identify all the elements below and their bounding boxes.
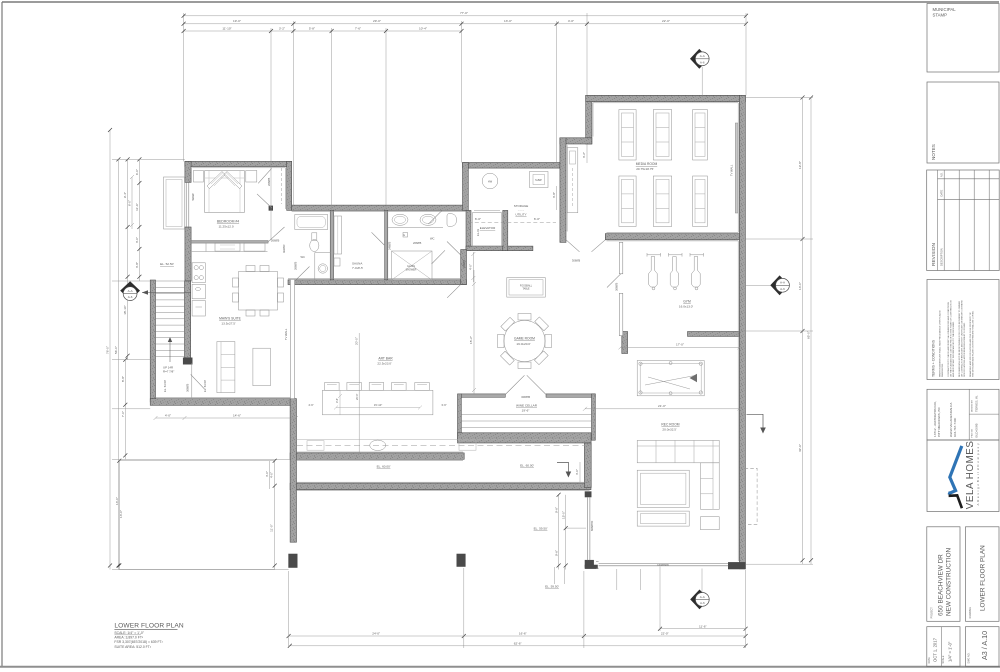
svg-text:R=7 7/8": R=7 7/8": [163, 369, 174, 373]
svg-text:11'-6": 11'-6": [135, 203, 139, 211]
svg-text:MEDIA ROOM: MEDIA ROOM: [636, 162, 658, 166]
svg-text:20'-0": 20'-0": [355, 393, 359, 400]
svg-text:21'-0": 21'-0": [658, 404, 666, 408]
svg-text:7'-6": 7'-6": [355, 26, 361, 30]
svg-text:EL. 52.50': EL. 52.50': [160, 262, 174, 266]
svg-text:4'-0": 4'-0": [575, 469, 579, 475]
svg-text:13'-0": 13'-0": [504, 19, 512, 23]
svg-text:3068'B: 3068'B: [572, 259, 580, 263]
svg-text:18'-10": 18'-10": [123, 305, 127, 315]
svg-text:THE DESIGNER AND PLANS ON THIS: THE DESIGNER AND PLANS ON THIS PREMISE S…: [972, 310, 975, 377]
svg-text:STAMP: STAMP: [933, 12, 948, 17]
svg-text:24'-0": 24'-0": [372, 632, 380, 636]
svg-text:22'-0": 22'-0": [662, 19, 670, 23]
svg-text:SAUNA: SAUNA: [352, 262, 362, 266]
svg-text:DESIGN BY: DESIGN BY: [972, 400, 974, 412]
svg-text:11.25x12.0: 11.25x12.0: [218, 225, 233, 229]
svg-text:20'-0": 20'-0": [354, 337, 358, 345]
svg-text:WDW: WDW: [191, 193, 195, 200]
svg-text:22.5x23.0': 22.5x23.0': [377, 362, 392, 366]
svg-text:15'-0": 15'-0": [561, 511, 565, 519]
svg-text:3'-0": 3'-0": [135, 237, 139, 243]
svg-text:NOTES: NOTES: [931, 144, 936, 160]
svg-text:20.0x32.5': 20.0x32.5': [662, 428, 677, 432]
svg-text:EL. 59.50': EL. 59.50': [534, 527, 548, 531]
svg-text:GAME ROOM: GAME ROOM: [514, 337, 535, 341]
svg-text:1/4" = 1'-0": 1/4" = 1'-0": [948, 641, 953, 662]
svg-text:7'-0": 7'-0": [121, 411, 125, 417]
svg-text:11'-6": 11'-6": [699, 624, 707, 628]
svg-text:9'-6": 9'-6": [554, 550, 558, 556]
svg-text:650 BEACHVIEW DR: 650 BEACHVIEW DR: [938, 554, 945, 616]
svg-text:FSR 3,307(657/2018) = 639 FT²: FSR 3,307(657/2018) = 639 FT²: [114, 640, 163, 644]
svg-text:LOWER FLOOR PLAN: LOWER FLOOR PLAN: [114, 623, 184, 630]
svg-text:4'-0": 4'-0": [568, 19, 574, 23]
svg-text:29'-0": 29'-0": [373, 19, 381, 23]
svg-text:VELA HOMES: VELA HOMES: [965, 441, 976, 510]
svg-text:4'-0": 4'-0": [165, 414, 171, 418]
svg-text:TV WALL: TV WALL: [284, 328, 288, 340]
svg-text:FILE NO: FILE NO: [972, 429, 974, 438]
svg-text:TV WALL: TV WALL: [730, 164, 734, 176]
svg-text:19'-6": 19'-6": [522, 409, 530, 413]
svg-text:SPECIFICATIONS AFTER BUILDING: SPECIFICATIONS AFTER BUILDING PERMIT IS …: [963, 322, 966, 377]
svg-text:STORAGE: STORAGE: [514, 204, 529, 208]
svg-text:65'-0": 65'-0": [807, 331, 811, 339]
svg-text:EL. 53.50': EL. 53.50': [203, 379, 207, 392]
svg-text:2668'B: 2668'B: [294, 262, 298, 270]
svg-text:EL. 53.50': EL. 53.50': [163, 379, 167, 392]
svg-text:WC: WC: [301, 255, 306, 259]
svg-text:76'-0": 76'-0": [106, 346, 110, 354]
svg-text:DESIGNER WILL NOT BE RESPONSIB: DESIGNER WILL NOT BE RESPONSIBLE FOR COS…: [959, 301, 961, 377]
svg-text:6068'PD: 6068'PD: [590, 521, 594, 531]
svg-text:17'-0": 17'-0": [676, 343, 684, 347]
svg-text:AND REPORT ANY DISCREPANCIES T: AND REPORT ANY DISCREPANCIES TO THE DESI…: [952, 321, 955, 377]
svg-text:4'-0": 4'-0": [265, 471, 269, 477]
svg-text:16068'PD: 16068'PD: [657, 563, 669, 567]
svg-text:HW: HW: [488, 180, 493, 183]
svg-text:2068'B: 2068'B: [267, 178, 271, 186]
svg-text:REVISION: REVISION: [931, 243, 937, 266]
svg-text:DATE: DATE: [928, 657, 931, 664]
svg-text:77'-0": 77'-0": [460, 11, 468, 15]
svg-text:BEDROOM #4: BEDROOM #4: [217, 220, 239, 224]
svg-text:EL-01: EL-01: [476, 228, 480, 236]
svg-text:SHOWER: SHOWER: [406, 268, 417, 271]
svg-text:15'-2": 15'-2": [469, 336, 473, 344]
svg-text:A D e s i g n B u i l d C o: A D e s i g n B u i l d C o m p a n y: [976, 443, 980, 506]
svg-text:3068'B: 3068'B: [186, 384, 190, 392]
svg-text:ELEVATOR: ELEVATOR: [480, 226, 496, 230]
svg-text:WC: WC: [430, 237, 435, 241]
svg-text:14'-6": 14'-6": [233, 414, 241, 418]
svg-text:9'-6": 9'-6": [554, 507, 558, 513]
svg-text:56'-0": 56'-0": [114, 346, 118, 354]
svg-text:8'-8": 8'-8": [121, 376, 125, 382]
svg-text:FOOSBALL: FOOSBALL: [520, 285, 533, 288]
svg-text:TERMS + CONDITIONS: TERMS + CONDITIONS: [932, 339, 936, 377]
svg-text:6'-0": 6'-0": [128, 200, 132, 206]
svg-text:BLD-0085: BLD-0085: [975, 423, 979, 437]
svg-text:11'-0": 11'-0": [269, 524, 273, 532]
svg-text:2468'B: 2468'B: [387, 242, 391, 250]
svg-text:22'-0": 22'-0": [661, 632, 669, 636]
svg-text:4'-0": 4'-0": [469, 264, 473, 270]
svg-text:3'-6": 3'-6": [335, 398, 339, 403]
svg-text:DESCRIPTION: DESCRIPTION: [940, 248, 944, 266]
svg-text:EL. 59.50': EL. 59.50': [545, 585, 559, 589]
svg-text:3'-8": 3'-8": [135, 262, 139, 268]
svg-text:16.0x13.0': 16.0x13.0': [679, 305, 694, 309]
svg-text:SUITE AREA: 512.0 FT²: SUITE AREA: 512.0 FT²: [114, 645, 151, 649]
svg-text:3'-2": 3'-2": [582, 152, 586, 158]
svg-text:OR CONTRACTOR BROUGHT ABOUT BY: OR CONTRACTOR BROUGHT ABOUT BY OMISSIONS…: [961, 300, 964, 377]
svg-text:3068'B: 3068'B: [521, 395, 530, 399]
svg-text:3068'B: 3068'B: [615, 283, 619, 291]
svg-text:4'-6": 4'-6": [308, 403, 313, 407]
svg-text:UTILITY: UTILITY: [515, 212, 526, 216]
svg-text:DIMENSIONS.: DIMENSIONS.: [942, 363, 944, 377]
svg-text:A3 / A.10: A3 / A.10: [980, 631, 989, 660]
svg-text:WRITTEN DIMENSIONS SHALL TAKE: WRITTEN DIMENSIONS SHALL TAKE PRECEDENCE…: [939, 310, 942, 377]
svg-text:TABLE: TABLE: [522, 288, 530, 291]
svg-text:TORIES, W.: TORIES, W.: [975, 395, 979, 412]
svg-text:16'-6": 16'-6": [519, 632, 527, 636]
svg-text:SUMP: SUMP: [535, 180, 542, 182]
svg-text:3'-2": 3'-2": [279, 26, 285, 30]
svg-text:10'-4": 10'-4": [419, 26, 427, 30]
svg-text:SCALE: SCALE: [942, 655, 945, 663]
svg-text:32'-6": 32'-6": [798, 444, 802, 452]
svg-text:19'-0": 19'-0": [233, 19, 241, 23]
svg-text:EL. 60.00': EL. 60.00': [377, 465, 391, 469]
svg-text:6'-0": 6'-0": [534, 217, 540, 221]
svg-text:13'-0": 13'-0": [115, 497, 119, 505]
svg-text:15'-10": 15'-10": [374, 403, 382, 407]
svg-text:PITT MEADOWS, BC: PITT MEADOWS, BC: [937, 406, 941, 437]
svg-text:ON THE PLAN AND THE JOB SITE P: ON THE PLAN AND THE JOB SITE PRIOR TO TH…: [950, 300, 953, 377]
svg-text:9'-4": 9'-4": [123, 192, 127, 198]
svg-text:11'-10": 11'-10": [222, 26, 231, 30]
svg-text:20.75x18.75': 20.75x18.75': [636, 167, 654, 171]
svg-text:7'-0x8'-5': 7'-0x8'-5': [352, 266, 364, 270]
svg-text:19'-8": 19'-8": [798, 161, 802, 169]
svg-text:MAIN'S SUITE: MAIN'S SUITE: [219, 317, 241, 321]
svg-text:MUNICIPAL: MUNICIPAL: [933, 7, 957, 12]
svg-text:13'-0": 13'-0": [119, 510, 123, 518]
svg-text:3'-8": 3'-8": [552, 192, 556, 198]
svg-text:2868'B: 2868'B: [462, 260, 466, 268]
svg-text:DATE: DATE: [940, 190, 944, 197]
svg-text:NO.: NO.: [940, 172, 944, 177]
svg-text:EL. 60.00': EL. 60.00': [520, 464, 534, 468]
svg-text:4'-0": 4'-0": [269, 472, 273, 478]
svg-text:2668'B: 2668'B: [282, 245, 286, 253]
svg-text:13.5x27.5': 13.5x27.5': [221, 322, 236, 326]
svg-text:2668'B: 2668'B: [271, 238, 279, 242]
svg-text:DRAWING: DRAWING: [969, 607, 972, 619]
svg-text:PROJECT: PROJECT: [931, 607, 934, 619]
svg-text:AREA: 3,897.0 FT²: AREA: 3,897.0 FT²: [114, 636, 144, 640]
svg-text:WINE CELLAR: WINE CELLAR: [516, 404, 538, 408]
svg-text:LOWER FLOOR PLAN: LOWER FLOOR PLAN: [980, 545, 987, 611]
svg-text:G: G: [403, 233, 405, 237]
svg-text:CONTRACTOR TO CHECK AND VERIFY: CONTRACTOR TO CHECK AND VERIFY ALL DIMEN…: [947, 301, 950, 377]
svg-text:GYM: GYM: [683, 300, 691, 304]
svg-text:REC ROOM: REC ROOM: [661, 423, 679, 427]
svg-text:SCALE: 1/4" = 1'-0": SCALE: 1/4" = 1'-0": [114, 631, 144, 635]
svg-text:DWG NO.: DWG NO.: [968, 652, 971, 663]
svg-text:NEW CONSTRUCTION: NEW CONSTRUCTION: [946, 547, 953, 616]
svg-text:19.0x20.0': 19.0x20.0': [516, 342, 531, 346]
svg-text:DRAWINGS AND SPECIFICATIONS AR: DRAWINGS AND SPECIFICATIONS ARE THE SOLE…: [969, 311, 972, 377]
svg-text:6'-0": 6'-0": [475, 217, 481, 221]
svg-text:2668'B: 2668'B: [413, 241, 421, 245]
svg-text:3'-6": 3'-6": [441, 403, 446, 407]
svg-text:13'-0": 13'-0": [798, 282, 802, 290]
svg-text:604-767-7400: 604-767-7400: [953, 417, 957, 437]
svg-text:5'-8": 5'-8": [309, 26, 315, 30]
svg-text:ART BAR: ART BAR: [378, 357, 393, 361]
svg-text:6'-0": 6'-0": [135, 169, 139, 175]
svg-text:OCT 1, 2017: OCT 1, 2017: [933, 637, 938, 662]
svg-text:62'-6": 62'-6": [514, 641, 522, 645]
